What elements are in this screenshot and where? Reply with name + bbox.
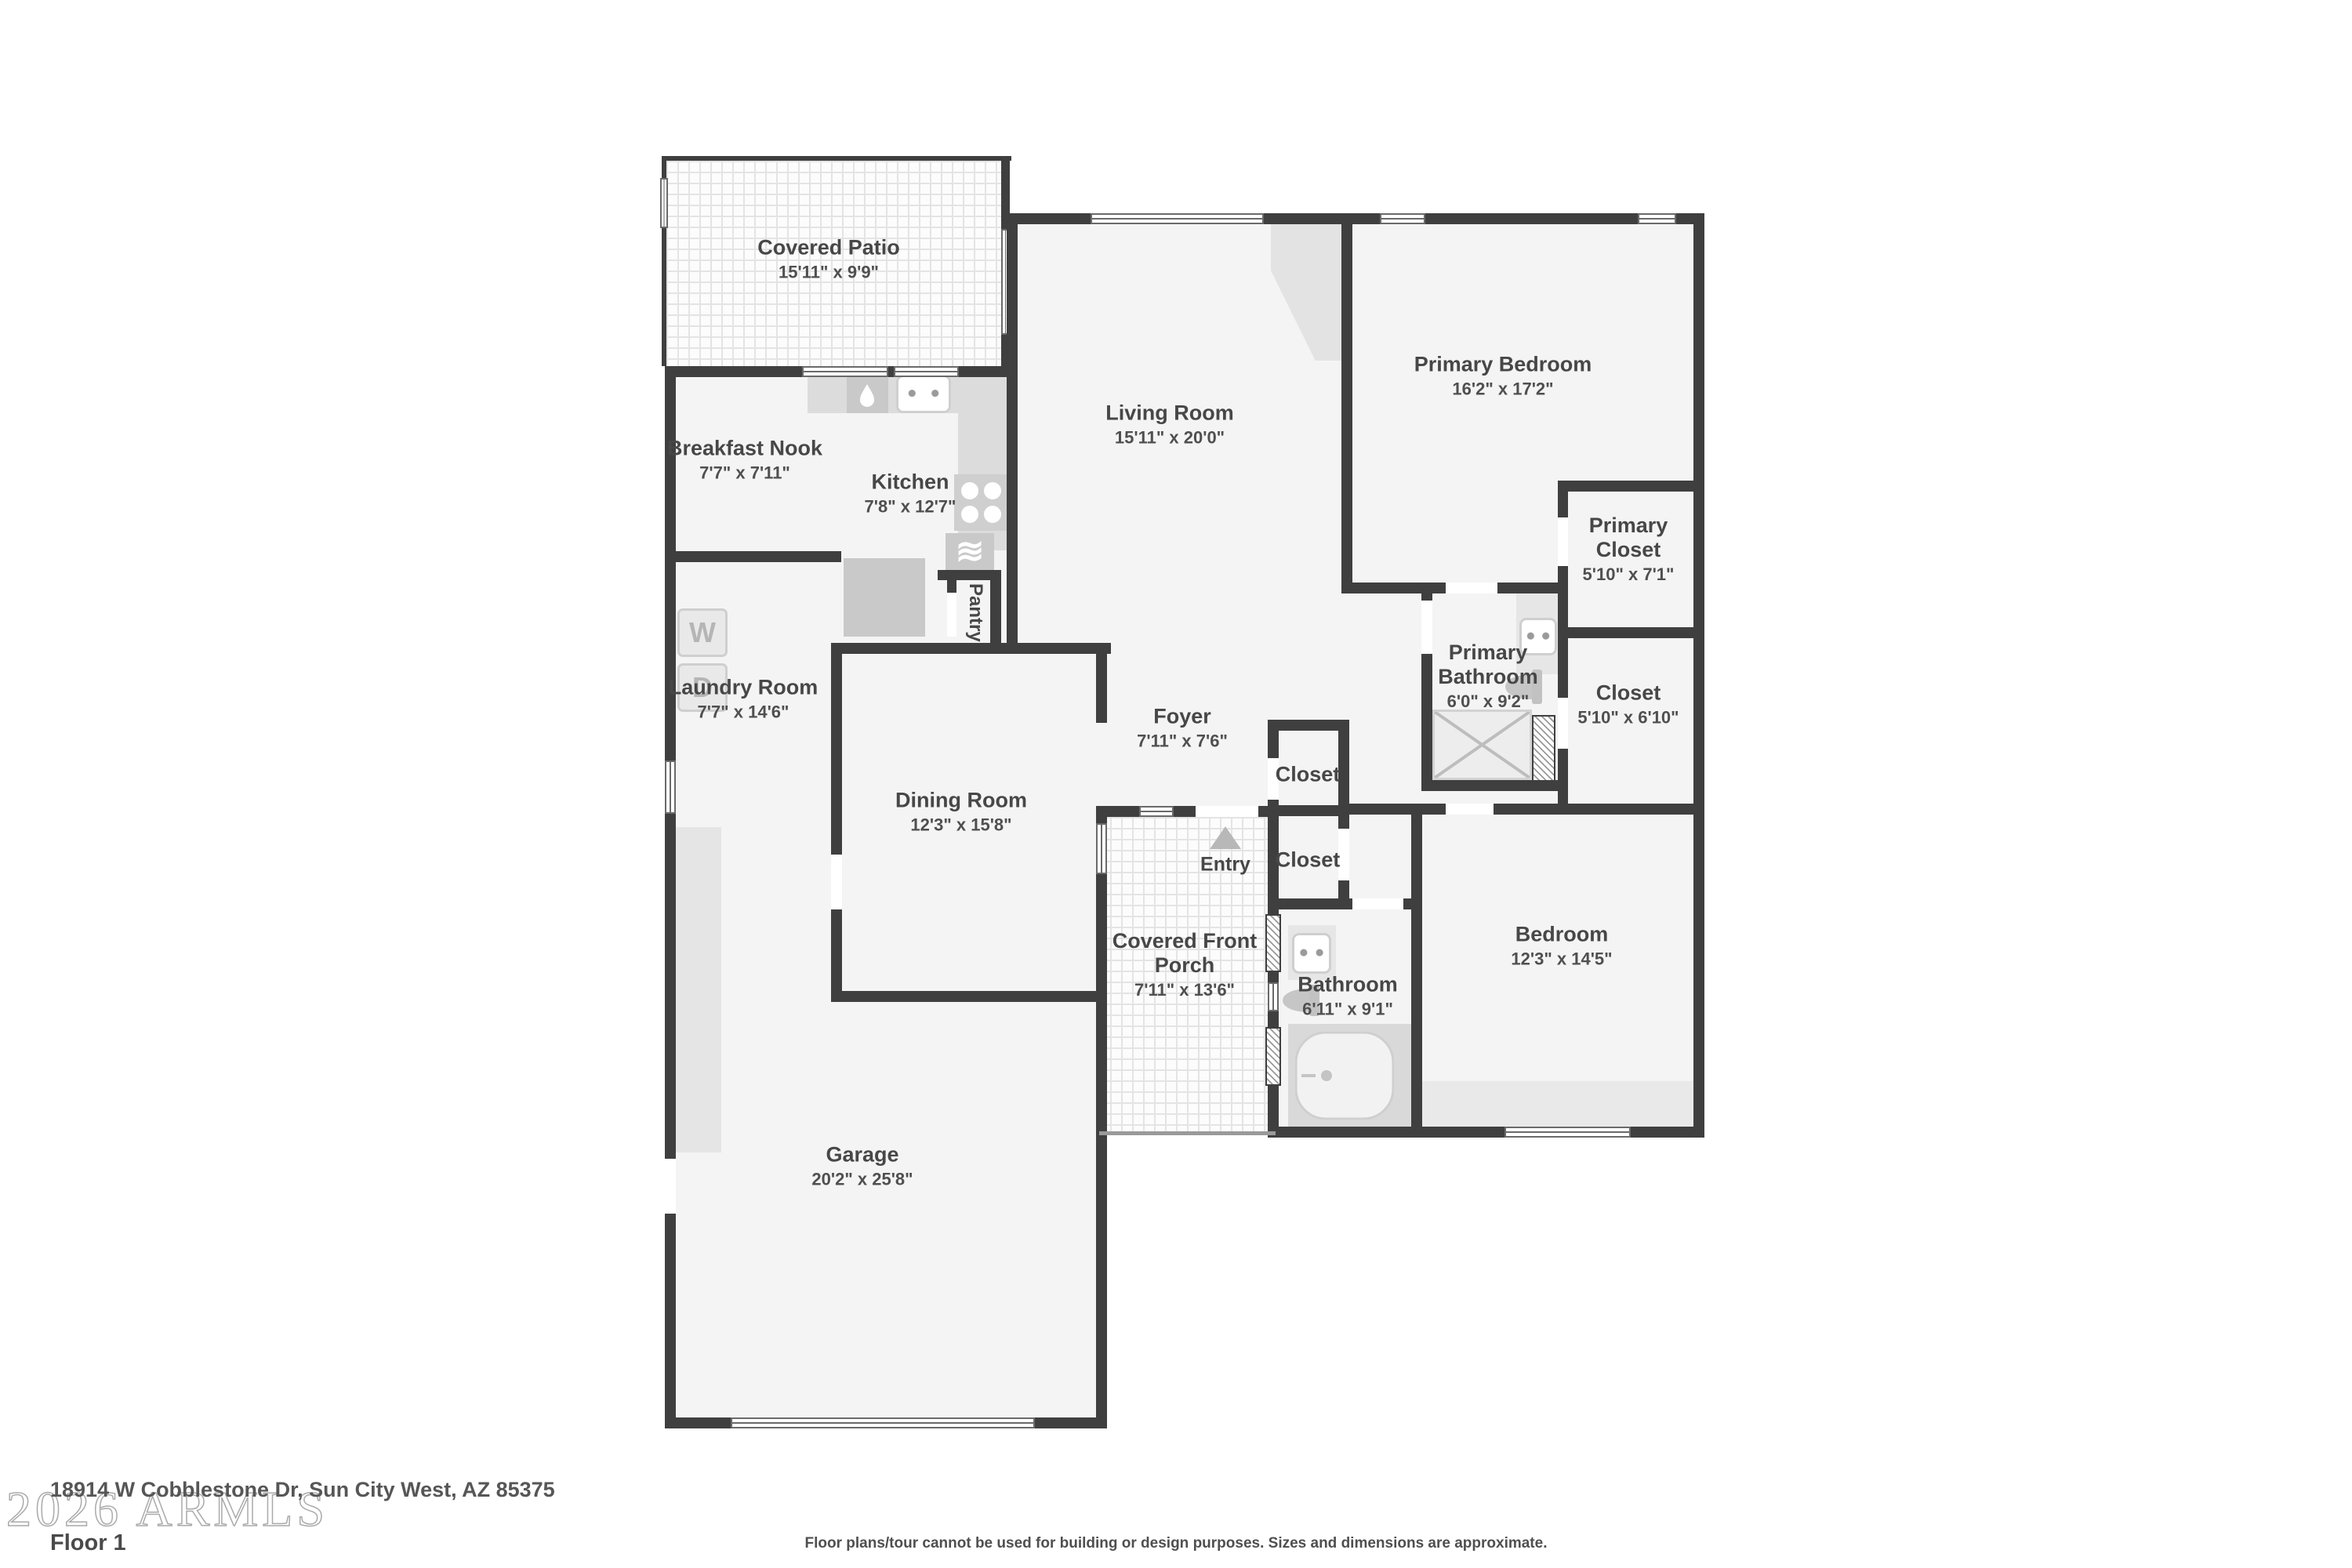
floor-label: Floor 1 <box>50 1530 126 1556</box>
oven-cabinet <box>844 558 925 637</box>
shower <box>1432 710 1532 780</box>
wall-segment <box>1558 749 1568 815</box>
wall-segment <box>662 228 666 366</box>
wall-segment <box>947 570 956 593</box>
porch-door-panel <box>1265 914 1281 972</box>
room-label-covered-patio: Covered Patio 15'11" x 9'9" <box>757 235 900 281</box>
window <box>665 760 676 814</box>
wall-segment <box>1421 780 1564 791</box>
wall-segment <box>1096 649 1107 723</box>
window <box>1139 806 1174 817</box>
wall-segment <box>1494 804 1704 815</box>
wall-segment <box>831 909 842 996</box>
dishwasher-waves-icon: ≋ <box>956 532 985 572</box>
window <box>1091 213 1264 224</box>
room-label-breakfast-nook: Breakfast Nook 7'7" x 7'11" <box>667 436 822 482</box>
bedroom-closet-band <box>1422 1081 1693 1127</box>
wall-segment <box>1341 583 1446 593</box>
room-label-primary-bedroom: Primary Bedroom 16'2" x 17'2" <box>1414 352 1592 398</box>
entry-label: Entry <box>1200 854 1250 877</box>
room-label-bedroom: Bedroom 12'3" x 14'5" <box>1511 922 1612 968</box>
wall-segment <box>1096 817 1107 1428</box>
window <box>1504 1127 1631 1138</box>
door-opening <box>1446 583 1497 593</box>
room-label-dining-room: Dining Room 12'3" x 15'8" <box>895 788 1027 834</box>
wall-segment <box>1268 1086 1279 1127</box>
wall-segment <box>831 991 1107 1002</box>
wall-segment <box>1099 806 1139 817</box>
kitchen-appliance-box <box>847 377 888 413</box>
wall-segment <box>662 156 666 178</box>
wall-segment <box>990 570 1001 650</box>
garage-door <box>731 1417 1035 1428</box>
water-droplet-icon <box>847 377 888 413</box>
window <box>1096 823 1107 874</box>
wall-segment <box>1338 880 1349 898</box>
disclaimer-text: Floor plans/tour cannot be used for buil… <box>805 1535 1548 1552</box>
wall-segment <box>1693 213 1704 1138</box>
wall-segment <box>1341 213 1352 593</box>
pantry-label: Pantry <box>964 583 986 642</box>
room-label-covered-front-porch: Covered Front Porch 7'11" x 13'6" <box>1110 929 1259 1000</box>
wall-segment <box>662 156 1011 161</box>
floor-plan-page: ≋ W D <box>0 0 2352 1568</box>
room-label-primary-bathroom: Primary Bathroom 6'0" x 9'2" <box>1410 641 1566 711</box>
wall-segment <box>1497 583 1564 593</box>
bathtub <box>1295 1032 1394 1120</box>
room-label-kitchen: Kitchen 7'8" x 12'7" <box>865 470 956 516</box>
cooktop <box>954 474 1007 531</box>
washer: W <box>677 608 728 657</box>
room-label-foyer: Foyer 7'11" x 7'6" <box>1137 704 1228 750</box>
bathroom-sink <box>1292 933 1331 974</box>
kitchen-sink <box>896 375 951 413</box>
wall-segment <box>1268 720 1349 731</box>
room-label-closet-right: Closet 5'10" x 6'10" <box>1577 681 1679 727</box>
wall-segment <box>1268 972 1279 982</box>
primary-bath-pocket-door <box>1532 715 1555 782</box>
porch-door-panel <box>1265 1027 1281 1086</box>
wall-segment <box>1007 213 1018 654</box>
window <box>1638 213 1676 224</box>
wall-segment <box>1268 898 1352 909</box>
room-label-living-room: Living Room 15'11" x 20'0" <box>1105 401 1234 447</box>
door-opening <box>947 593 956 637</box>
bathtub-icon <box>1295 1032 1394 1120</box>
window <box>802 366 888 377</box>
wall-segment <box>665 551 841 562</box>
wall-segment <box>1268 1127 1704 1138</box>
door-opening <box>1352 898 1403 909</box>
garage-storage-strip <box>676 827 721 1152</box>
dishwasher: ≋ <box>946 533 994 570</box>
window <box>1380 213 1425 224</box>
window <box>894 366 959 377</box>
room-label-garage: Garage 20'2" x 25'8" <box>811 1142 913 1189</box>
washer-label: W <box>689 616 716 649</box>
shower-x-icon <box>1435 712 1530 778</box>
entry-arrow-icon <box>1210 826 1241 849</box>
wall-segment <box>831 643 1111 654</box>
room-label-closet-foyer-lower: Closet <box>1276 848 1341 872</box>
wall-segment <box>831 643 842 855</box>
wall-segment <box>1174 806 1196 817</box>
window <box>1268 982 1279 1011</box>
address-text: 18914 W Cobblestone Dr, Sun City West, A… <box>50 1478 555 1502</box>
wall-segment <box>1558 627 1704 638</box>
room-label-laundry-room: Laundry Room 7'7" x 14'6" <box>669 675 818 721</box>
room-label-primary-closet: Primary Closet 5'10" x 7'1" <box>1564 514 1693 584</box>
wall-segment <box>665 366 676 1428</box>
wall-segment <box>1349 804 1446 815</box>
wall-segment <box>1268 805 1349 816</box>
wall-segment <box>1421 593 1432 601</box>
wall-segment <box>1558 481 1704 492</box>
room-label-closet-foyer-upper: Closet <box>1276 762 1341 786</box>
front-door-opening <box>1196 806 1258 817</box>
door-opening <box>831 855 842 909</box>
door-opening <box>1446 804 1494 815</box>
wall-segment <box>1268 1011 1279 1027</box>
garage-side-door-opening <box>665 1159 676 1214</box>
window <box>660 178 668 228</box>
cooktop-burners-icon <box>954 474 1007 531</box>
room-label-bathroom: Bathroom 6'11" x 9'1" <box>1298 972 1398 1018</box>
porch-edge <box>1099 1131 1276 1135</box>
wall-segment <box>1411 815 1422 1127</box>
